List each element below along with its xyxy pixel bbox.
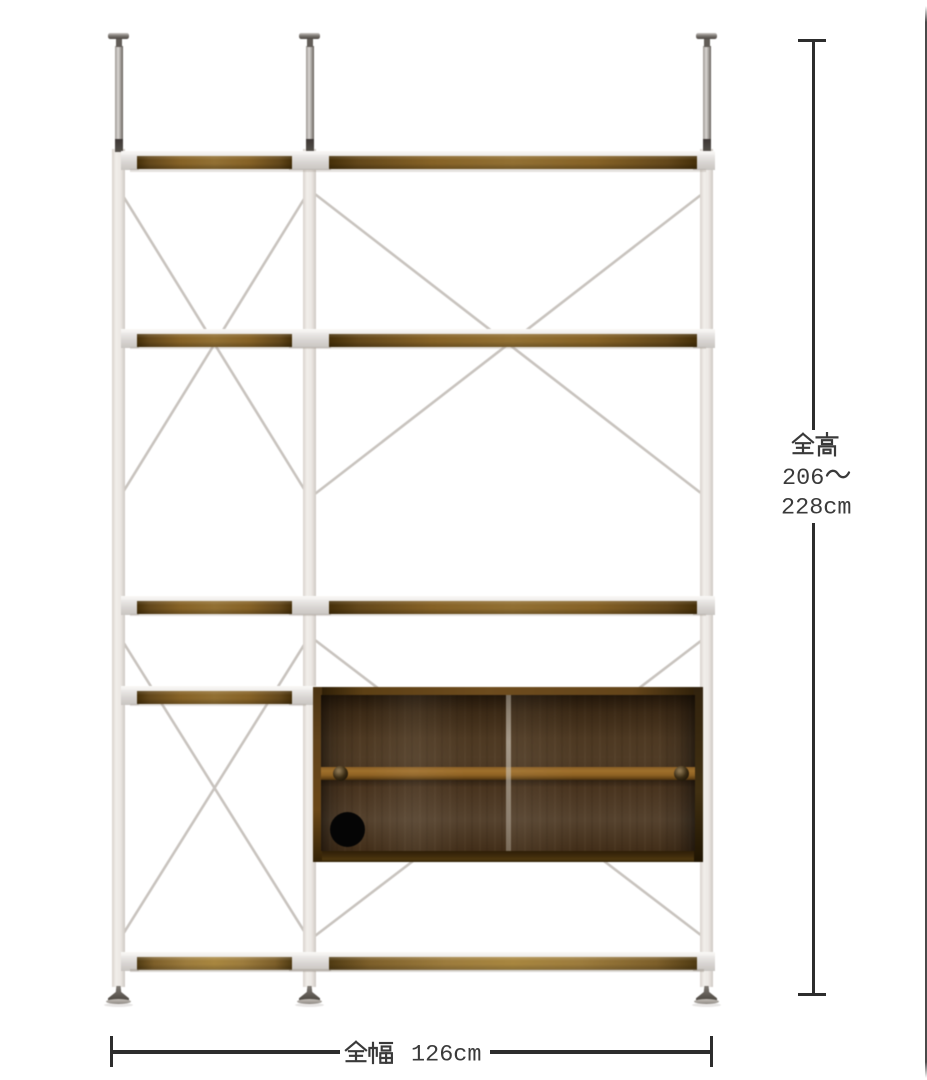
svg-text:228cm: 228cm	[781, 495, 852, 522]
svg-text:126cm: 126cm	[411, 1042, 482, 1069]
svg-text:206: 206	[782, 465, 824, 492]
